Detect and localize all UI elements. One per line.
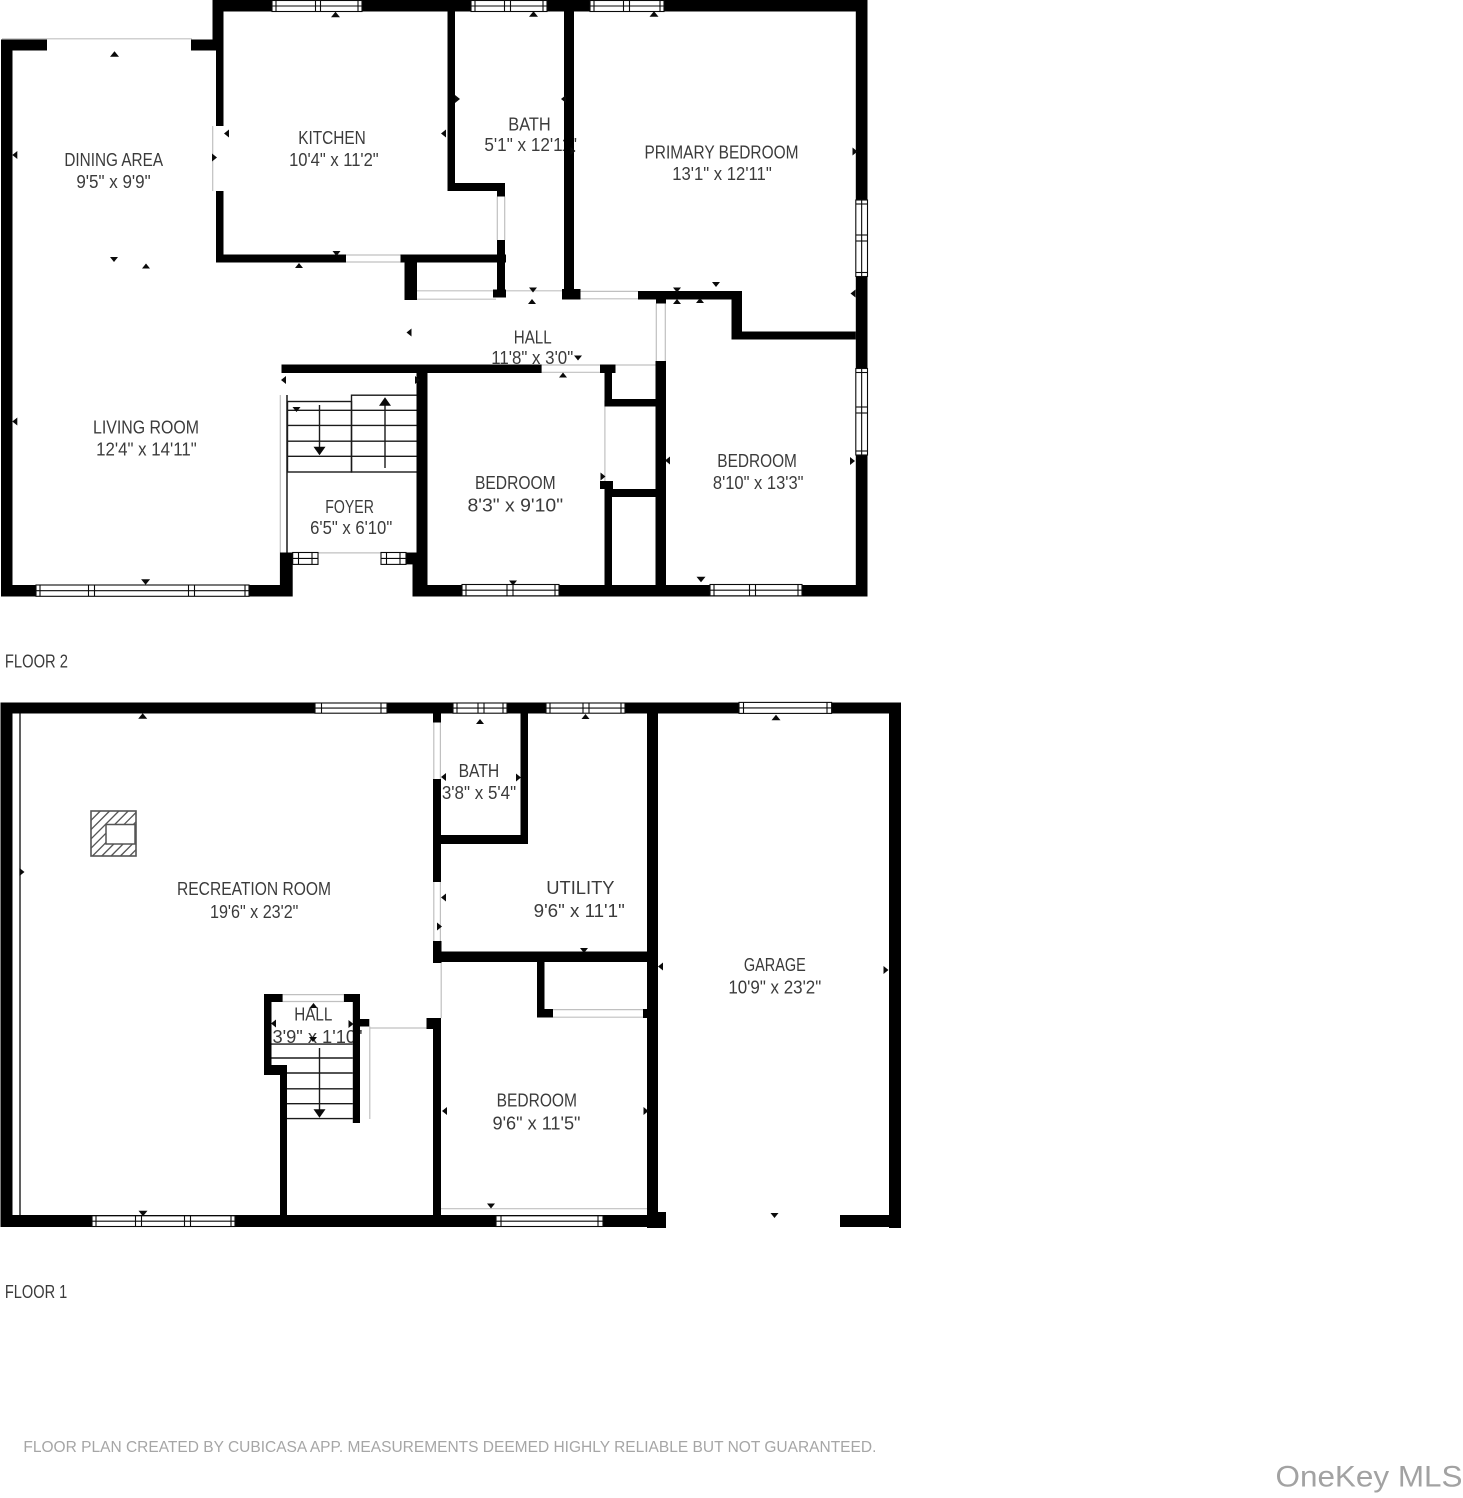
svg-text:PRIMARY BEDROOM: PRIMARY BEDROOM (645, 143, 799, 163)
svg-text:BEDROOM: BEDROOM (497, 1091, 577, 1111)
svg-text:DINING AREA: DINING AREA (64, 150, 163, 170)
svg-text:BATH: BATH (459, 761, 500, 781)
svg-text:12'4" x 14'11": 12'4" x 14'11" (96, 440, 197, 460)
svg-text:OneKey MLS: OneKey MLS (1276, 1460, 1463, 1493)
svg-text:UTILITY: UTILITY (546, 878, 614, 898)
svg-text:8'3" x 9'10": 8'3" x 9'10" (468, 496, 564, 516)
svg-text:BEDROOM: BEDROOM (717, 451, 797, 471)
svg-text:19'6" x 23'2": 19'6" x 23'2" (210, 902, 298, 922)
svg-text:9'5" x 9'9": 9'5" x 9'9" (76, 172, 150, 192)
svg-text:HALL: HALL (514, 328, 552, 348)
svg-text:8'10" x 13'3": 8'10" x 13'3" (713, 473, 804, 493)
svg-text:3'9" x 1'10": 3'9" x 1'10" (273, 1027, 363, 1047)
svg-text:RECREATION ROOM: RECREATION ROOM (177, 879, 331, 899)
svg-text:10'4" x 11'2": 10'4" x 11'2" (289, 150, 379, 170)
svg-text:GARAGE: GARAGE (744, 955, 806, 975)
svg-text:FLOOR 2: FLOOR 2 (5, 651, 68, 671)
svg-text:KITCHEN: KITCHEN (298, 128, 366, 148)
svg-text:9'6" x 11'5": 9'6" x 11'5" (493, 1114, 581, 1134)
svg-text:6'5" x 6'10": 6'5" x 6'10" (310, 518, 392, 538)
svg-text:3'8" x 5'4": 3'8" x 5'4" (442, 783, 516, 803)
svg-text:9'6" x 11'1": 9'6" x 11'1" (534, 901, 625, 921)
svg-text:FLOOR 1: FLOOR 1 (5, 1282, 67, 1302)
svg-text:13'1" x 12'11": 13'1" x 12'11" (672, 164, 772, 184)
svg-text:LIVING ROOM: LIVING ROOM (93, 418, 199, 438)
svg-text:5'1" x 12'11": 5'1" x 12'11" (484, 135, 577, 155)
svg-text:BATH: BATH (508, 115, 550, 135)
svg-text:FOYER: FOYER (325, 497, 374, 517)
svg-text:FLOOR PLAN CREATED BY CUBICASA: FLOOR PLAN CREATED BY CUBICASA APP. MEAS… (23, 1439, 876, 1456)
svg-text:10'9" x 23'2": 10'9" x 23'2" (728, 978, 821, 998)
svg-text:BEDROOM: BEDROOM (475, 473, 556, 493)
